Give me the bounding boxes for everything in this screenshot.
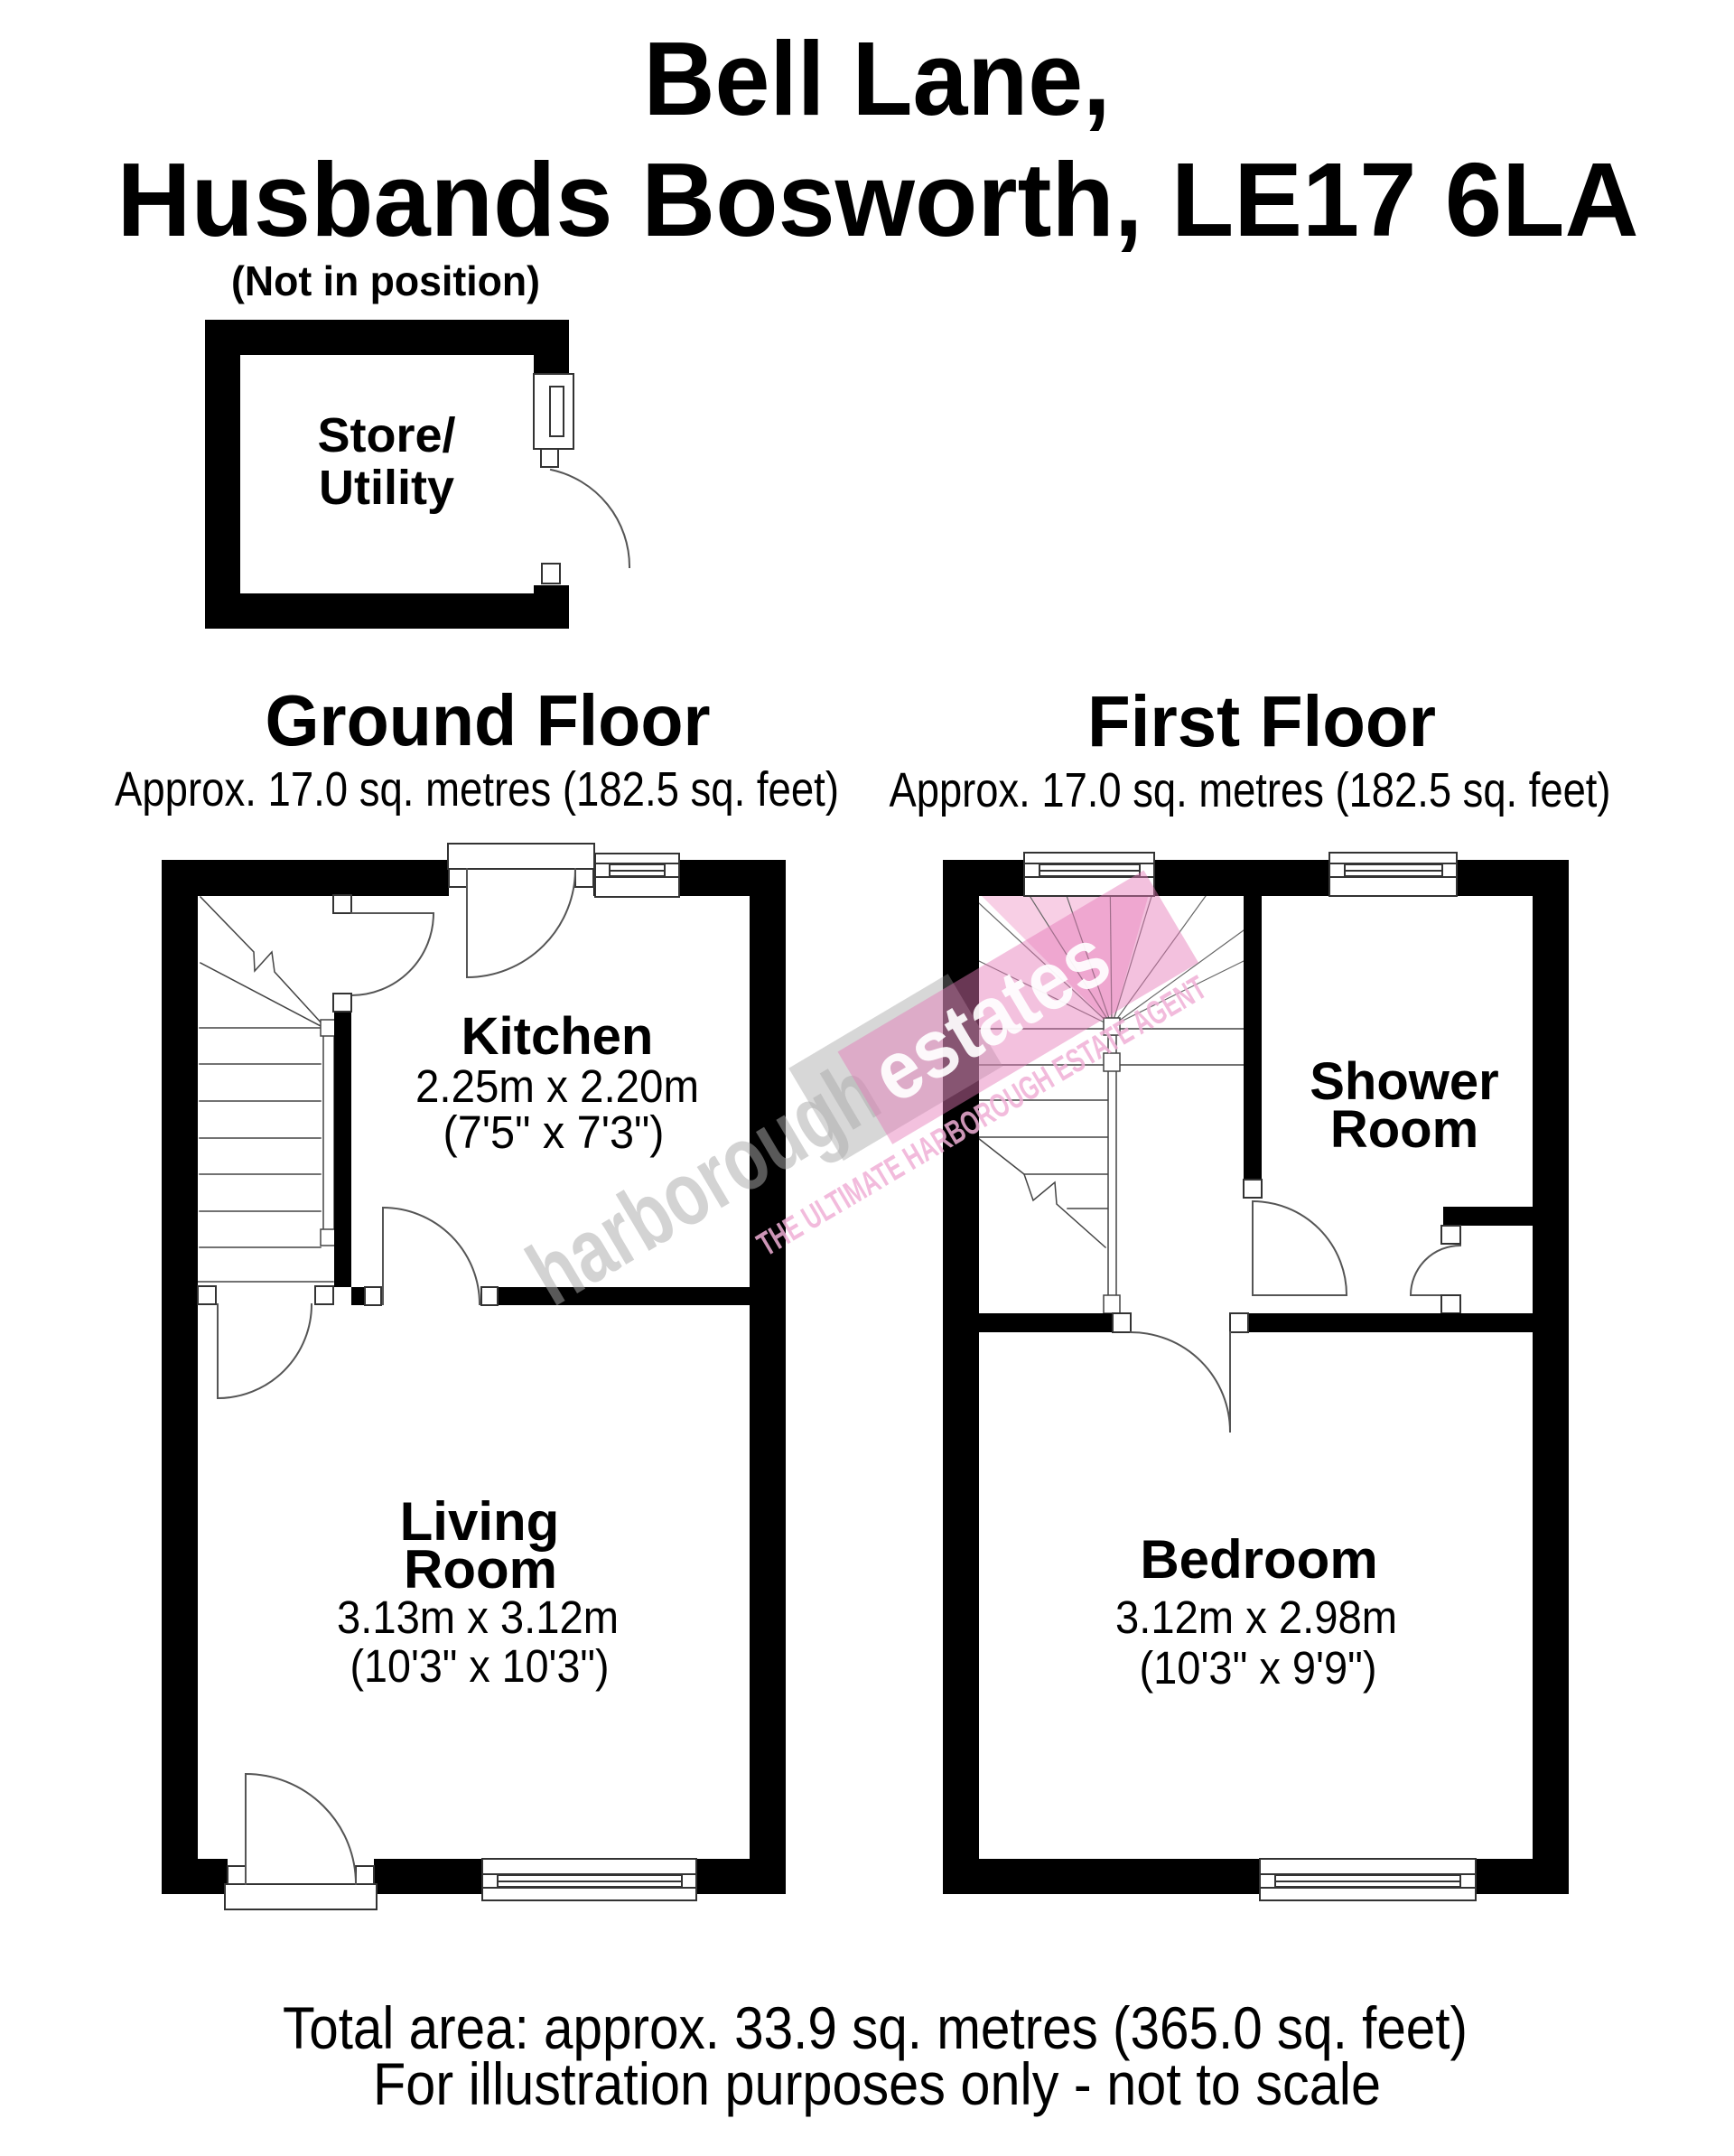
svg-text:Approx. 17.0 sq. metres (182.5: Approx. 17.0 sq. metres (182.5 sq. feet) (115, 762, 839, 817)
svg-text:Utility: Utility (319, 461, 454, 515)
svg-text:3.13m x 3.12m: 3.13m x 3.12m (337, 1591, 619, 1643)
svg-text:(Not in position): (Not in position) (231, 257, 540, 304)
svg-text:Ground Floor: Ground Floor (266, 680, 711, 761)
svg-text:First Floor: First Floor (1087, 681, 1436, 761)
svg-text:(7'5" x 7'3"): (7'5" x 7'3") (443, 1106, 665, 1158)
svg-text:Room: Room (1330, 1100, 1478, 1159)
svg-text:2.25m x 2.20m: 2.25m x 2.20m (415, 1060, 699, 1112)
svg-text:For illustration purposes only: For illustration purposes only - not to … (373, 2050, 1381, 2117)
svg-text:3.12m x 2.98m: 3.12m x 2.98m (1115, 1591, 1397, 1643)
svg-text:Room: Room (404, 1539, 557, 1600)
svg-text:Store/: Store/ (317, 408, 455, 462)
svg-text:Husbands Bosworth, LE17 6LA: Husbands Bosworth, LE17 6LA (117, 141, 1639, 258)
svg-text:(10'3" x 10'3"): (10'3" x 10'3") (350, 1640, 610, 1692)
svg-text:Kitchen: Kitchen (461, 1007, 654, 1066)
svg-text:Bell Lane,: Bell Lane, (644, 20, 1111, 137)
svg-text:(10'3" x 9'9"): (10'3" x 9'9") (1140, 1642, 1377, 1694)
svg-text:Bedroom: Bedroom (1140, 1529, 1377, 1590)
svg-text:Approx. 17.0 sq. metres (182.5: Approx. 17.0 sq. metres (182.5 sq. feet) (890, 763, 1611, 817)
